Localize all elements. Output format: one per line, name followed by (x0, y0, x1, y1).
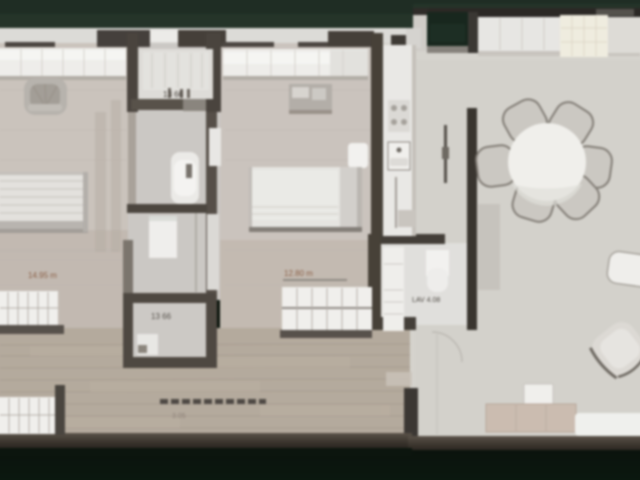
svg-text:14.95 m: 14.95 m (28, 271, 57, 280)
svg-text:LAV 4.08: LAV 4.08 (412, 297, 440, 304)
svg-text:12.80 m: 12.80 m (284, 269, 313, 278)
svg-text:13 66: 13 66 (163, 90, 184, 99)
svg-text:3.05: 3.05 (172, 413, 186, 420)
svg-text:13 66: 13 66 (151, 312, 172, 321)
